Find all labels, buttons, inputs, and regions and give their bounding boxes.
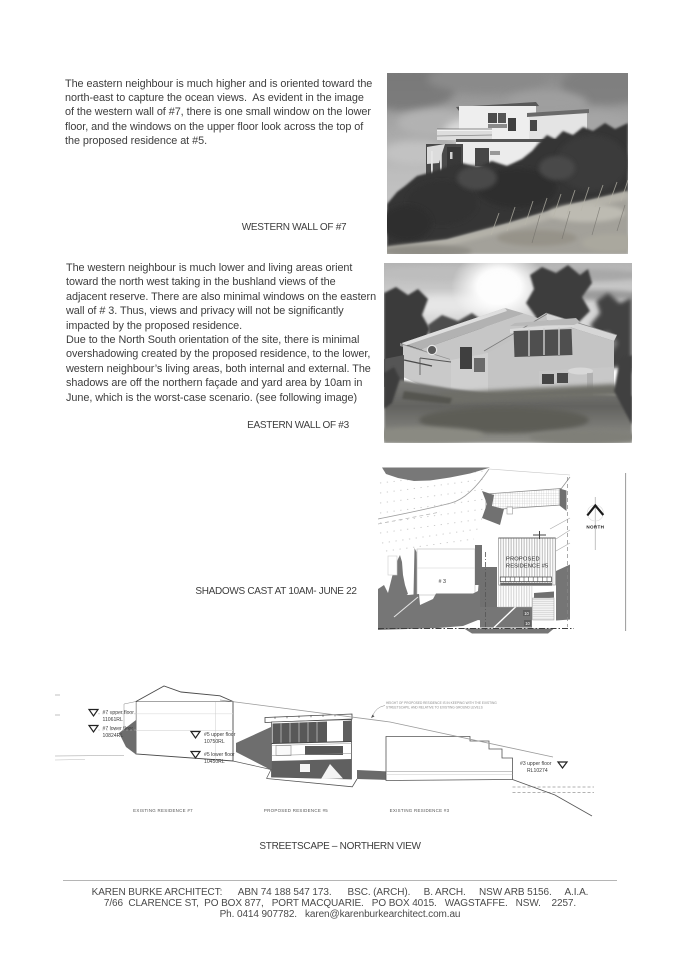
svg-text:#3 upper floor: #3 upper floor bbox=[520, 761, 552, 767]
svg-text:STREETSCAPE, AND RELATIVE TO E: STREETSCAPE, AND RELATIVE TO EXISTING GR… bbox=[386, 706, 483, 710]
svg-text:#5 upper floor: #5 upper floor bbox=[204, 732, 236, 738]
svg-text:#7 lower floor: #7 lower floor bbox=[103, 726, 134, 732]
svg-text:10450RL: 10450RL bbox=[204, 759, 225, 765]
svg-text:10750RL: 10750RL bbox=[204, 739, 225, 745]
svg-text:EXISTING RESIDENCE #3: EXISTING RESIDENCE #3 bbox=[390, 808, 450, 813]
svg-text:EXISTING RESIDENCE #7: EXISTING RESIDENCE #7 bbox=[133, 808, 193, 813]
svg-text:10824RL: 10824RL bbox=[103, 733, 124, 739]
svg-text:11061RL: 11061RL bbox=[103, 717, 123, 723]
svg-text:PROPOSED: PROPOSED bbox=[506, 557, 540, 563]
svg-text:RESIDENCE #5: RESIDENCE #5 bbox=[506, 564, 548, 570]
svg-text:#5 lower floor: #5 lower floor bbox=[204, 752, 235, 758]
svg-text:RL10274: RL10274 bbox=[527, 768, 548, 774]
svg-text:# 3: # 3 bbox=[439, 579, 447, 585]
svg-text:10: 10 bbox=[525, 621, 530, 626]
svg-text:HEIGHT OF PROPOSED RESIDENCE I: HEIGHT OF PROPOSED RESIDENCE IS IN KEEPI… bbox=[386, 701, 497, 705]
svg-text:PROPOSED RESIDENCE #5: PROPOSED RESIDENCE #5 bbox=[264, 808, 328, 813]
svg-text:NORTH: NORTH bbox=[586, 525, 604, 530]
svg-text:#7 upper floor: #7 upper floor bbox=[103, 710, 135, 716]
svg-text:10: 10 bbox=[524, 611, 529, 616]
